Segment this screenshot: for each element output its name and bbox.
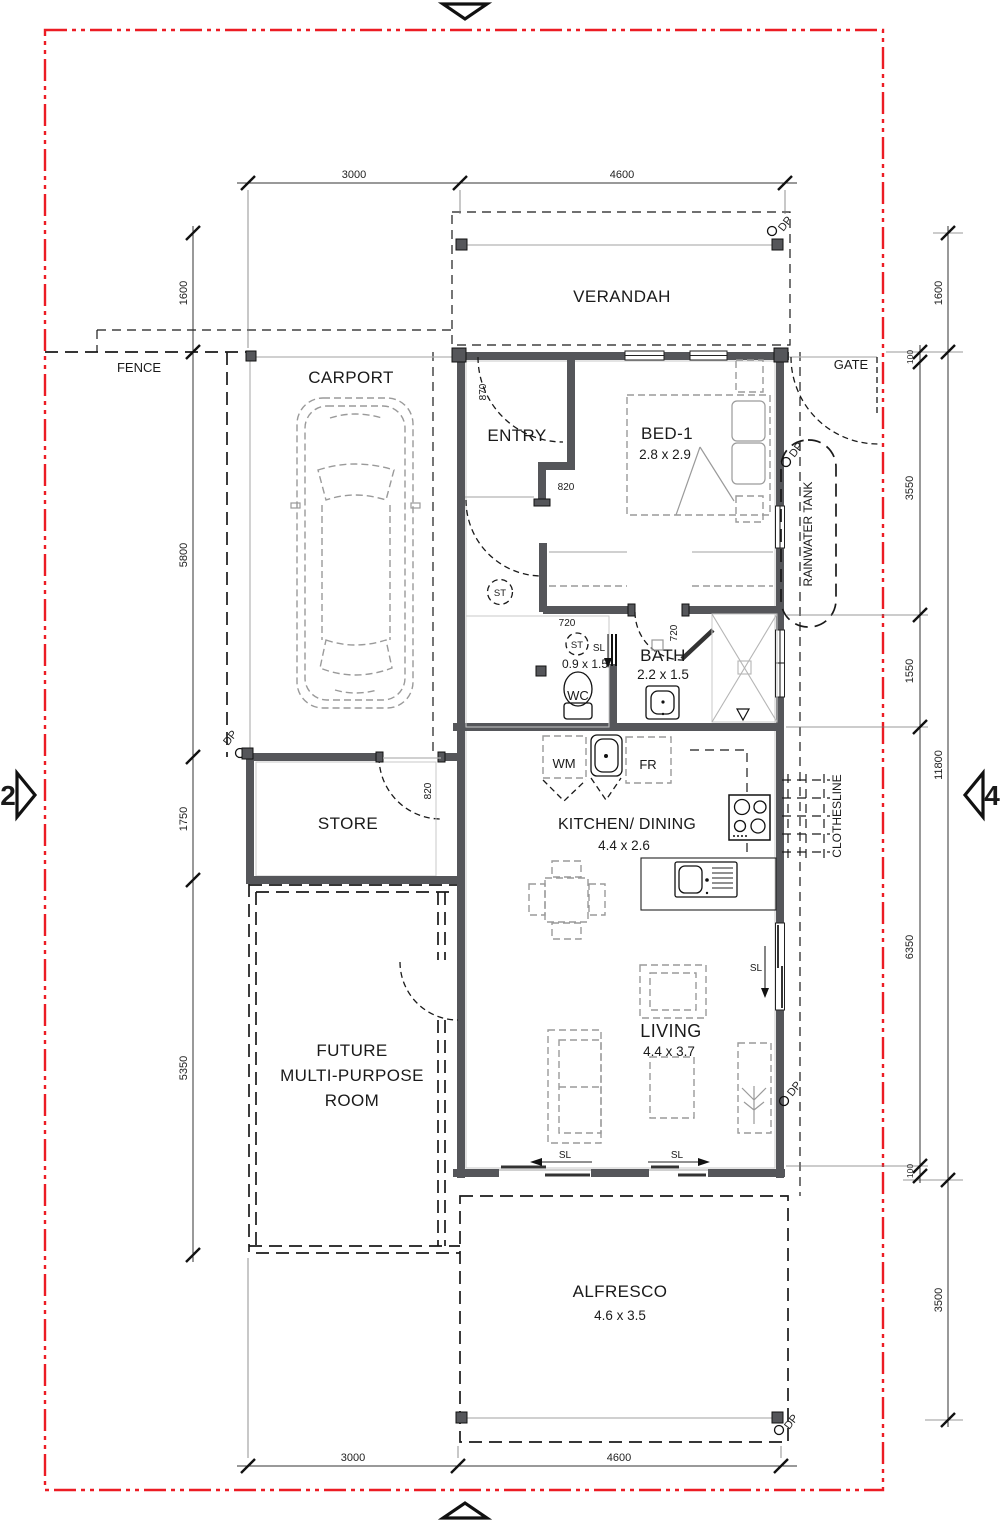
bath-size: 2.2 x 1.5 <box>637 667 689 682</box>
shower-screen <box>682 630 713 659</box>
section-marker-right-icon <box>965 773 983 817</box>
carport-post <box>246 351 256 361</box>
downpipe-label: DP <box>221 728 240 747</box>
pillow-icon <box>732 443 765 484</box>
wc-label: WC <box>567 688 589 703</box>
bedside-table-icon <box>736 360 763 392</box>
downpipe-label: DP <box>787 440 806 459</box>
entry-door-dim: 870 <box>478 383 489 400</box>
room-alfresco: ALFRESCO 4.6 x 3.5 DP <box>456 1196 801 1442</box>
room-store: STORE 820 <box>242 748 460 884</box>
doors <box>379 357 683 1020</box>
alfresco-post <box>456 1412 467 1423</box>
rainwater-tank-label: RAINWATER TANK <box>801 482 815 587</box>
wc-door-dim: 720 <box>559 618 576 629</box>
dim-value: 1600 <box>933 281 945 305</box>
dim-value: 1550 <box>904 659 916 683</box>
dim-value: 3000 <box>342 169 366 181</box>
pillow-icon <box>732 401 765 441</box>
dim-value: 6350 <box>904 935 916 959</box>
wc-size: 0.9 x 1.5 <box>562 657 608 671</box>
bed1-size: 2.8 x 2.9 <box>639 447 691 462</box>
downpipe-icon <box>775 1426 784 1435</box>
verandah-post <box>772 239 783 250</box>
hall-door-dim: 820 <box>558 482 575 493</box>
dim-value: 4600 <box>607 1452 631 1464</box>
section-marker-right: 4 <box>965 773 1000 817</box>
kitchen-size: 4.4 x 2.6 <box>598 838 650 853</box>
dim-value: 3550 <box>904 476 916 500</box>
section-marker-right-label: 4 <box>984 780 1000 811</box>
wall-post <box>452 348 466 362</box>
dim-value: 1750 <box>178 807 190 831</box>
dimension-right-inner: 100 3550 1550 6350 100 <box>786 345 928 1183</box>
alfresco-size: 4.6 x 3.5 <box>594 1308 646 1323</box>
wm-label: WM <box>552 756 575 771</box>
store-door-dim: 820 <box>423 782 434 799</box>
dim-value: 100 <box>905 1164 915 1178</box>
dimension-right-outer: 1600 11800 3500 <box>886 226 963 1427</box>
dimension-left: 1600 5800 1750 5350 <box>178 226 200 1262</box>
floor-plan-page: 2 4 FENCE GATE VERANDAH DP <box>0 0 1000 1522</box>
verandah-label: VERANDAH <box>573 287 671 306</box>
alfresco-label: ALFRESCO <box>573 1282 668 1301</box>
downpipe-label: DP <box>785 1079 804 1098</box>
future-room-label-1: FUTURE <box>316 1041 387 1060</box>
sliding-window <box>776 923 785 1010</box>
dim-value: 11800 <box>933 750 945 780</box>
gate: GATE <box>789 357 878 444</box>
cooktop-icon <box>729 795 770 840</box>
room-verandah: VERANDAH DP <box>456 214 795 306</box>
floor-waste-icon <box>737 709 749 720</box>
laundry: WM FR <box>543 735 671 801</box>
gate-label: GATE <box>834 357 869 372</box>
dimension-top: 3000 4600 <box>237 169 797 348</box>
section-marker-left-icon <box>17 773 35 817</box>
plant-icon <box>738 1043 771 1133</box>
verandah-post <box>456 239 467 250</box>
future-room-label-2: MULTI-PURPOSE <box>280 1066 424 1085</box>
dining-table-icon <box>529 861 605 939</box>
downpipe-label: DP <box>782 1412 801 1431</box>
sl-label: SL <box>750 963 763 974</box>
store-label: STORE <box>318 814 378 833</box>
alfresco-post <box>772 1412 783 1423</box>
fence-label: FENCE <box>117 360 161 375</box>
sl-label: SL <box>559 1150 572 1161</box>
fence: FENCE <box>45 352 246 757</box>
st-label: ST <box>571 640 583 651</box>
kitchen-label: KITCHEN/ DINING <box>558 816 696 833</box>
robes <box>549 552 773 586</box>
clothesline-label: CLOTHESLINE <box>830 774 844 857</box>
dim-value: 5350 <box>178 1056 190 1080</box>
entry-label: ENTRY <box>487 426 546 445</box>
section-marker-bottom-icon <box>443 1503 487 1518</box>
room-future: FUTURE MULTI-PURPOSE ROOM <box>249 884 460 1253</box>
st-label: ST <box>494 588 506 599</box>
dim-value: 5800 <box>178 543 190 567</box>
car-icon <box>291 398 420 708</box>
coffee-table-icon <box>650 1057 694 1118</box>
dim-value: 3500 <box>933 1288 945 1312</box>
bed1-label: BED-1 <box>641 424 693 443</box>
sl-label: SL <box>671 1150 684 1161</box>
room-living: LIVING 4.4 x 3.7 SL SL SL DP <box>499 946 804 1175</box>
downpipe-label: DP <box>776 214 795 233</box>
section-marker-left-label: 2 <box>0 780 16 811</box>
fr-label: FR <box>639 757 656 772</box>
wall-post <box>774 348 788 362</box>
room-carport: CARPORT DP <box>221 351 455 758</box>
room-bed1: BED-1 2.8 x 2.9 <box>627 360 770 522</box>
section-marker-left: 2 <box>0 773 35 817</box>
dim-value: 1600 <box>178 281 190 305</box>
clothesline: CLOTHESLINE <box>782 774 844 858</box>
dim-value: 100 <box>905 350 915 364</box>
rainwater-tank: RAINWATER TANK DP <box>781 440 836 627</box>
shower-icon <box>712 614 777 722</box>
bath-door-dim: 720 <box>669 624 680 641</box>
downpipe-icon <box>768 227 777 236</box>
kitchen-sink-icon <box>641 858 776 910</box>
bedside-table-icon <box>736 496 763 522</box>
living-label: LIVING <box>640 1021 701 1041</box>
sl-label: SL <box>593 643 606 654</box>
dimension-bottom: 3000 4600 <box>237 1258 797 1473</box>
room-bath: BATH 2.2 x 1.5 720 <box>637 614 777 722</box>
carport-label: CARPORT <box>308 368 394 387</box>
house-inner-outline <box>466 361 775 1168</box>
floor-plan-drawing: 2 4 FENCE GATE VERANDAH DP <box>0 0 1000 1522</box>
future-room-door-swing <box>400 962 458 1020</box>
section-marker-top-icon <box>443 4 487 19</box>
dim-value: 3000 <box>341 1452 365 1464</box>
future-room-label-3: ROOM <box>325 1091 379 1110</box>
hall-door-swing <box>466 500 542 576</box>
dim-value: 4600 <box>610 169 634 181</box>
